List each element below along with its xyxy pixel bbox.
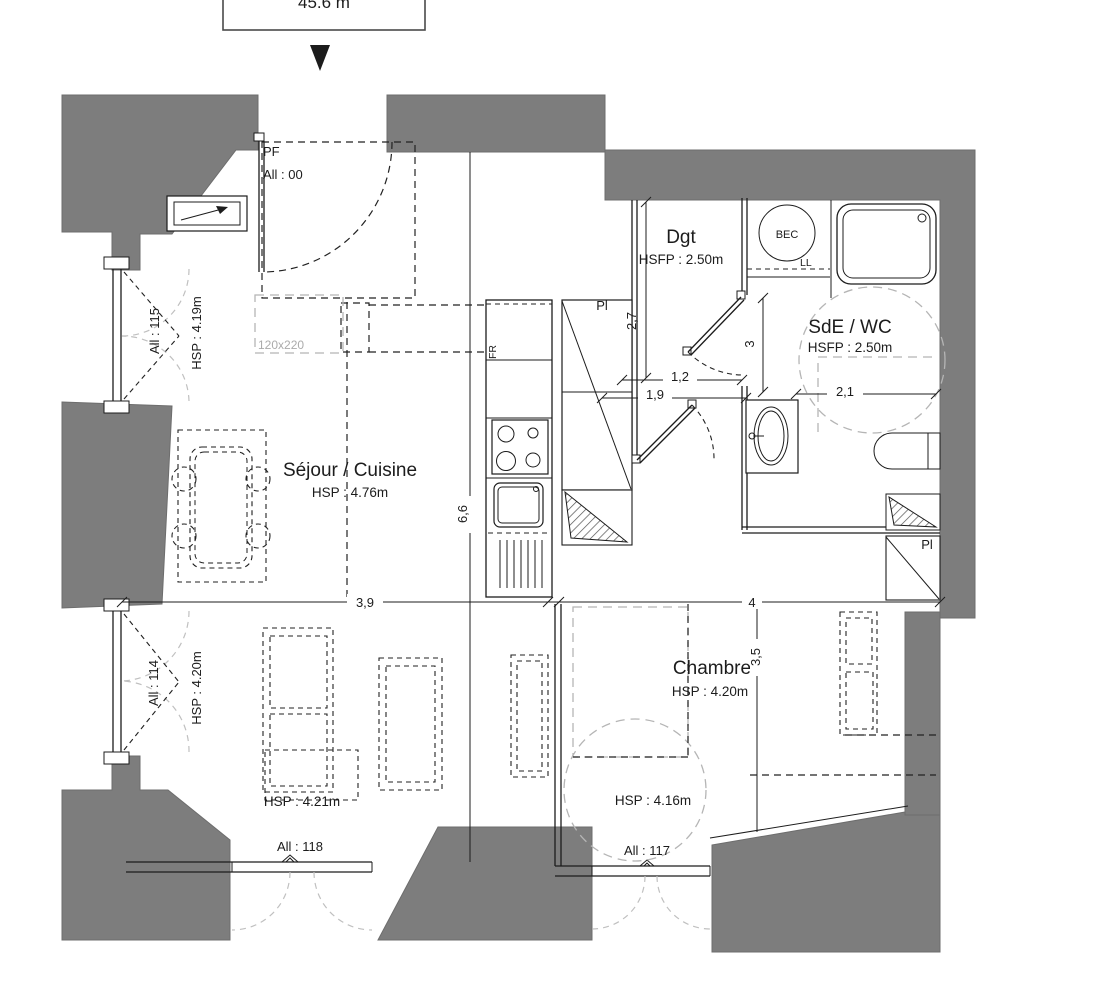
surface-area-box: 45.6 m <box>223 0 425 30</box>
door-bathroom <box>683 291 745 375</box>
dim-hall-w2: 1,9 <box>646 387 664 402</box>
wall-bottom-middle <box>378 827 592 940</box>
wall-top-left <box>62 95 258 270</box>
kitchen-unit <box>486 300 552 597</box>
living-room-name: Séjour / Cuisine <box>283 460 417 481</box>
sofa <box>263 628 333 792</box>
dim-bath-depth: 3 <box>742 340 757 347</box>
electrical-panel <box>167 196 247 231</box>
washbasin <box>746 400 798 473</box>
shower-tray <box>837 204 936 284</box>
wall-left-middle <box>62 402 172 608</box>
living-zone-ceiling: HSP : 4.21m <box>264 794 340 809</box>
water-heater-label: BEC <box>776 229 799 241</box>
radiator-unit <box>511 655 548 777</box>
dim-hall-depth: 2,7 <box>624 312 639 330</box>
dining-table <box>172 430 270 582</box>
door-bedroom <box>632 400 714 463</box>
surface-area-label: 45.6 m <box>298 0 350 12</box>
dim-living-width: 3,9 <box>356 595 374 610</box>
wall-bottom-left <box>62 756 230 940</box>
living-room-ceiling: HSP : 4.76m <box>312 485 388 500</box>
bedroom-ceiling: HSP : 4.20m <box>672 684 748 699</box>
entrance-arrow-icon <box>310 45 330 71</box>
window-118-id: All : 118 <box>277 839 323 854</box>
window-114-ceiling: HSP : 4.20m <box>189 651 204 724</box>
floor-plan-canvas: 45.6 m <box>0 0 1093 1000</box>
bedroom-name: Chambre <box>673 658 751 679</box>
furniture-unit <box>379 658 442 790</box>
dim-bath-width: 2,1 <box>836 384 854 399</box>
bathroom-closet-label: Pl <box>921 537 933 552</box>
wall-right-lower <box>905 612 940 815</box>
window-117-id: All : 117 <box>624 843 670 858</box>
kitchen-closet <box>562 300 632 545</box>
fridge-label: FR <box>487 345 499 359</box>
dim-bedroom-width: 4 <box>748 595 755 610</box>
wall-top-middle <box>387 95 605 152</box>
toilet <box>874 433 940 469</box>
entry-type-label: PF <box>263 144 280 159</box>
dim-bedroom-depth: 3,5 <box>748 648 763 666</box>
window-115-ceiling: HSP : 4.19m <box>189 296 204 369</box>
bathroom-name: SdE / WC <box>808 317 891 338</box>
hall-ceiling: HSFP : 2.50m <box>639 252 724 267</box>
floor-plan: 45.6 m <box>0 0 1093 1000</box>
hall-name: Dgt <box>666 227 696 248</box>
dim-hall-w1: 1,2 <box>671 369 689 384</box>
door-swing-arc <box>264 142 392 272</box>
washer-label: LL <box>800 257 812 269</box>
window-114-id: All : 114 <box>146 660 161 706</box>
stove <box>492 420 548 474</box>
entry-id-label: All : 00 <box>263 167 303 182</box>
skylight-label: 120x220 <box>258 338 304 352</box>
kitchen-closet-label: Pl <box>596 298 608 313</box>
window-115-id: All : 115 <box>147 308 162 354</box>
entry-zone-outline <box>262 142 415 298</box>
wall-bottom-right <box>712 812 940 952</box>
bathroom-ceiling: HSFP : 2.50m <box>808 340 893 355</box>
dim-living-depth: 6,6 <box>455 505 470 523</box>
bedroom-zone-ceiling: HSP : 4.16m <box>615 793 691 808</box>
